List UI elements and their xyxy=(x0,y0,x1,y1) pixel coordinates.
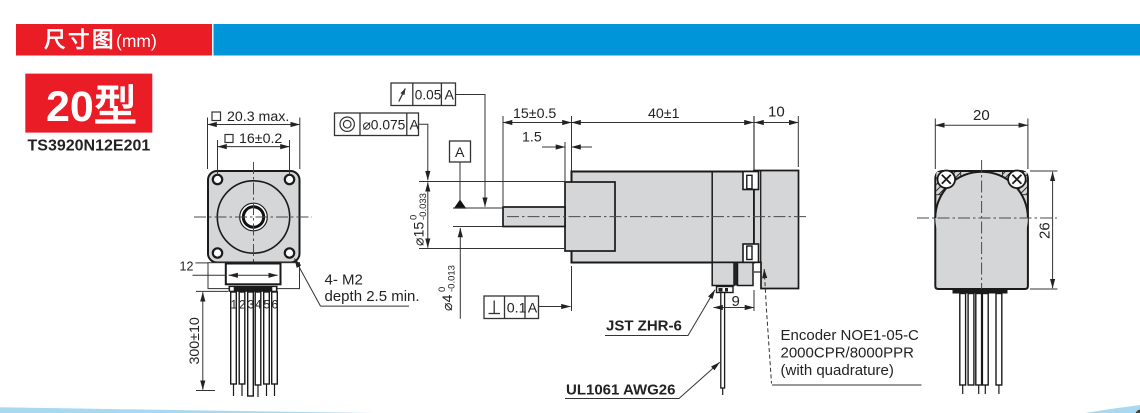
svg-text:TS3920N12E201: TS3920N12E201 xyxy=(28,138,151,155)
svg-text:300±10: 300±10 xyxy=(187,317,203,364)
svg-text:⌀15: ⌀15 xyxy=(412,222,428,246)
svg-text:JST ZHR-6: JST ZHR-6 xyxy=(606,318,682,335)
svg-text:A: A xyxy=(410,118,420,134)
svg-text:A: A xyxy=(445,88,455,104)
svg-text:(with quadrature): (with quadrature) xyxy=(781,362,894,379)
svg-text:2000CPR/8000PPR: 2000CPR/8000PPR xyxy=(781,345,915,362)
svg-text:1: 1 xyxy=(231,300,237,312)
svg-text:40±1: 40±1 xyxy=(648,106,680,122)
svg-text:⌀0.075: ⌀0.075 xyxy=(363,118,406,133)
svg-text:20型: 20型 xyxy=(46,83,137,131)
svg-text:A: A xyxy=(455,145,465,161)
svg-text:A: A xyxy=(528,301,538,317)
svg-text:0.1: 0.1 xyxy=(507,301,527,317)
svg-text:1.5: 1.5 xyxy=(522,130,542,146)
svg-text:20: 20 xyxy=(973,107,990,124)
svg-text:-0.033: -0.033 xyxy=(418,193,429,220)
svg-text:-0.013: -0.013 xyxy=(447,265,458,292)
svg-text:6: 6 xyxy=(272,300,278,312)
svg-text:26: 26 xyxy=(1037,222,1054,239)
svg-text:20.3 max.: 20.3 max. xyxy=(227,109,289,125)
svg-text:12: 12 xyxy=(180,260,194,274)
svg-text:Encoder NOE1-05-C: Encoder NOE1-05-C xyxy=(781,327,920,344)
svg-text:10: 10 xyxy=(768,104,785,121)
svg-text:4: 4 xyxy=(255,300,262,312)
svg-text:0.05: 0.05 xyxy=(415,88,441,103)
svg-text:⌀4: ⌀4 xyxy=(440,294,456,311)
svg-text:尺寸图(mm): 尺寸图(mm) xyxy=(44,28,157,52)
svg-text:2: 2 xyxy=(239,300,245,312)
svg-text:depth 2.5 min.: depth 2.5 min. xyxy=(325,288,420,305)
svg-text:5: 5 xyxy=(264,300,270,312)
svg-text:9: 9 xyxy=(732,293,740,310)
svg-text:16±0.2: 16±0.2 xyxy=(239,131,282,147)
svg-text:15±0.5: 15±0.5 xyxy=(513,106,556,122)
svg-text:UL1061 AWG26: UL1061 AWG26 xyxy=(566,382,676,399)
svg-text:3: 3 xyxy=(248,300,254,312)
svg-text:4- M2: 4- M2 xyxy=(325,272,363,289)
